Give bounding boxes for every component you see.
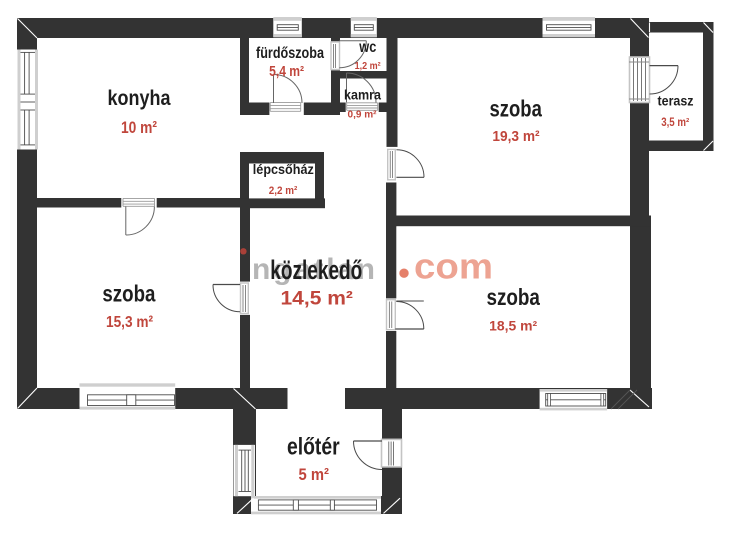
svg-text:18,5 m²: 18,5 m²: [489, 317, 537, 333]
svg-text:5,4 m²: 5,4 m²: [269, 64, 304, 80]
svg-text:5 m²: 5 m²: [299, 466, 330, 484]
svg-text:0,9 m²: 0,9 m²: [348, 109, 377, 121]
svg-text:19,3 m²: 19,3 m²: [492, 128, 539, 145]
svg-text:előtér: előtér: [287, 434, 340, 461]
svg-text:14,5 m²: 14,5 m²: [281, 288, 353, 309]
svg-text:fürdőszoba: fürdőszoba: [256, 45, 324, 62]
svg-text:3,5 m²: 3,5 m²: [661, 117, 689, 129]
svg-text:wc: wc: [358, 39, 376, 56]
svg-text:10 m²: 10 m²: [121, 119, 157, 137]
svg-text:1,2 m²: 1,2 m²: [355, 60, 381, 72]
svg-text:com: com: [414, 246, 493, 287]
svg-text:2,2 m²: 2,2 m²: [269, 185, 298, 197]
svg-text:szoba: szoba: [102, 281, 155, 307]
svg-text:terasz: terasz: [658, 94, 694, 109]
svg-text:kamra: kamra: [344, 86, 381, 102]
svg-text:közlekedő: közlekedő: [270, 255, 362, 285]
svg-text:konyha: konyha: [108, 86, 172, 110]
svg-text:15,3 m²: 15,3 m²: [106, 314, 153, 331]
svg-text:lépcsőház: lépcsőház: [253, 161, 314, 177]
svg-text:szoba: szoba: [490, 96, 542, 122]
svg-text:szoba: szoba: [486, 284, 540, 310]
